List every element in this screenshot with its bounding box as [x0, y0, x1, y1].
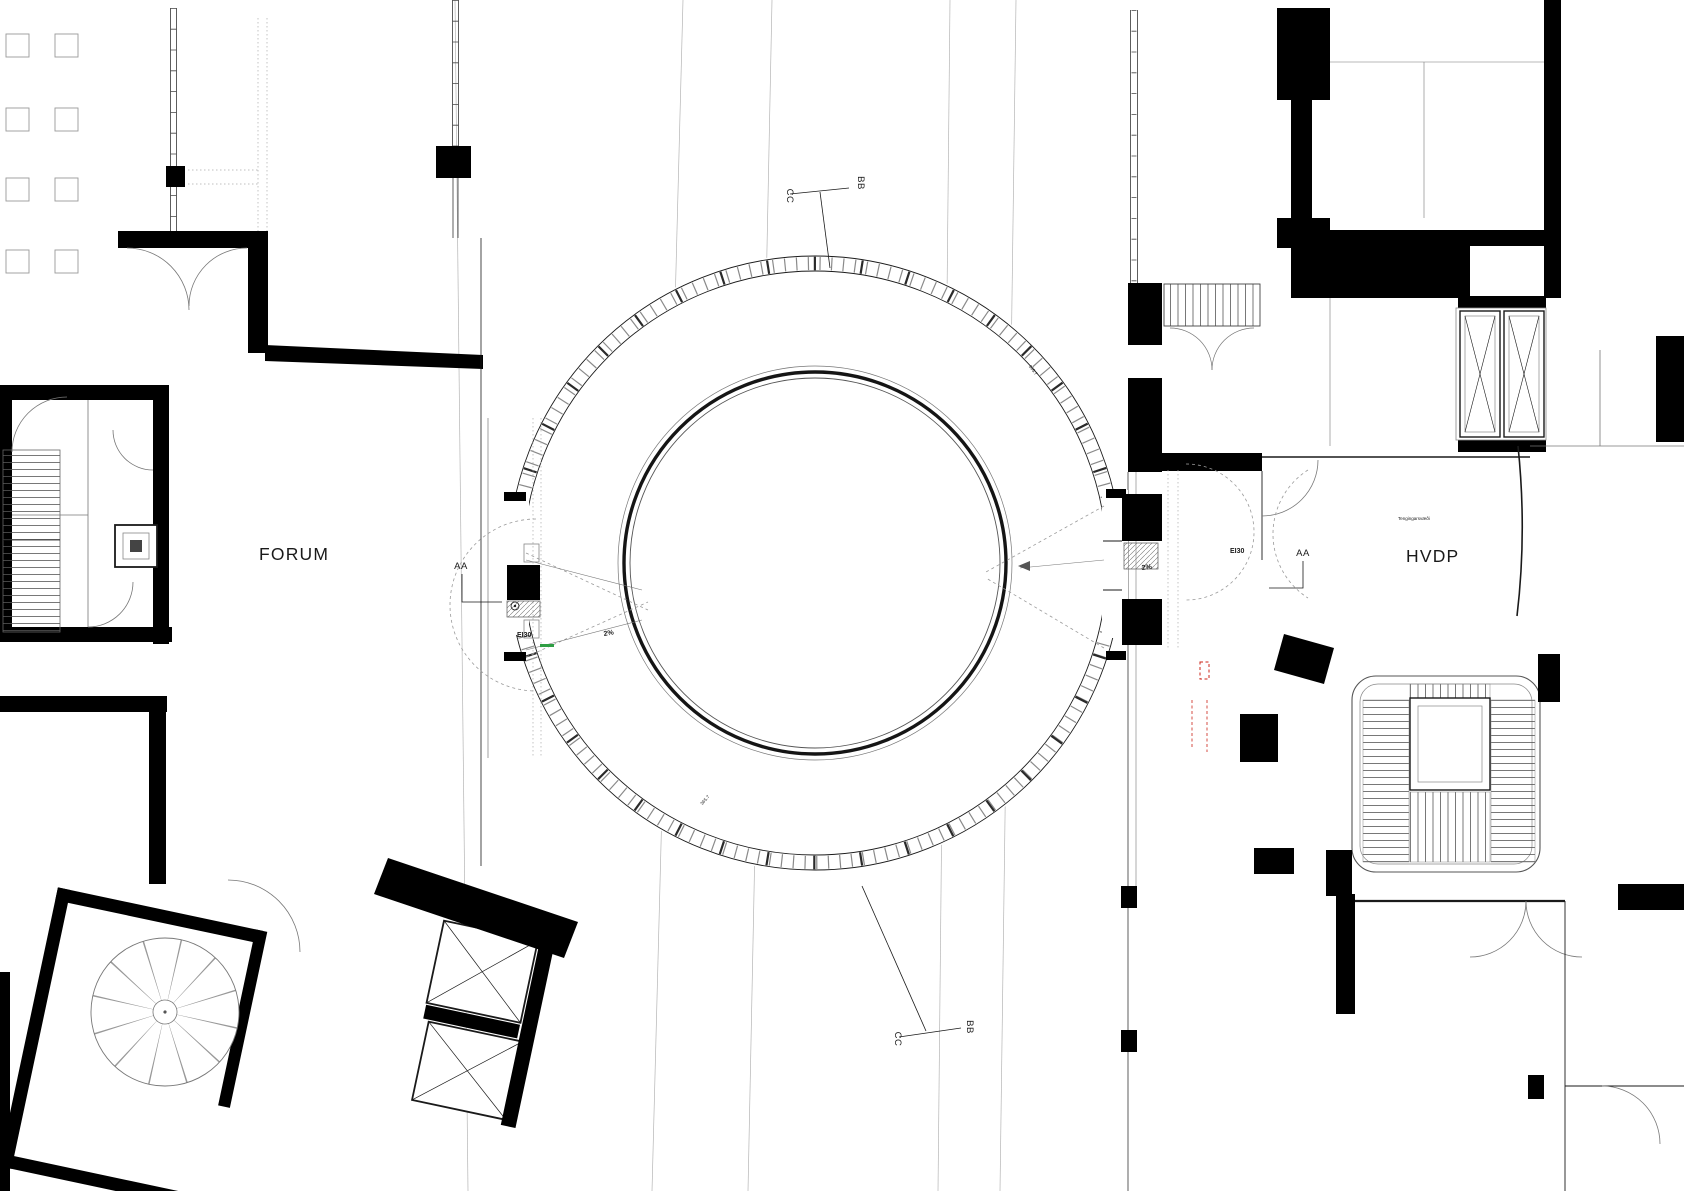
- upper-rooms: [118, 231, 483, 369]
- fire-rating-left-label: EI30: [517, 632, 532, 639]
- mid-left-rooms: [0, 385, 172, 644]
- section-aa-right-label: AA: [1296, 548, 1310, 559]
- ring-walkway: [503, 254, 1128, 872]
- curtain-wall-b: [436, 0, 471, 238]
- column-grid: [6, 34, 78, 273]
- fire-rating-right-label: EI30: [1230, 548, 1245, 555]
- bridge-core-wall: [507, 565, 540, 600]
- section-marker-bottom: CC BB: [862, 886, 975, 1046]
- green-marker: [540, 644, 554, 647]
- grid-reference-dashes: [188, 18, 267, 237]
- curtain-wall-a: [166, 8, 185, 237]
- door-swing-dashed: [1186, 464, 1254, 600]
- door-swing: [1526, 901, 1582, 957]
- forum-room-label: FORUM: [259, 544, 329, 564]
- door-swing: [1470, 901, 1526, 957]
- lower-left-block: [0, 696, 578, 1191]
- section-marker-aa-right: AA: [1269, 548, 1310, 588]
- lower-right-rooms: [1336, 884, 1684, 1191]
- left-building: FORUM: [0, 0, 578, 1191]
- square-stairwell: [1352, 676, 1540, 872]
- curtain-wall-right: [1131, 10, 1138, 283]
- section-bb-bottom-label: BB: [964, 1020, 975, 1034]
- stair-flight: [3, 450, 60, 632]
- right-building: Tengingarsvæði HVDP: [1121, 0, 1684, 1191]
- bridge-core-wall: [1122, 494, 1162, 541]
- floor-plan-drawing: FORUM: [0, 0, 1684, 1191]
- door-swing: [1262, 460, 1318, 516]
- floor-plan-canvas: FORUM: [0, 0, 1684, 1191]
- slope-right-label: 2%: [1141, 564, 1153, 572]
- curved-wall: [1517, 446, 1522, 616]
- section-bb-top-label: BB: [855, 176, 866, 190]
- stair-flight: [1164, 284, 1260, 326]
- door-swing: [1602, 1086, 1660, 1144]
- section-aa-left-label: AA: [454, 561, 468, 572]
- forum-facade: [481, 238, 488, 866]
- red-revision-marks: [1192, 662, 1209, 752]
- section-cc-top-label: CC: [784, 189, 795, 204]
- bridge-core-wall: [1122, 599, 1162, 645]
- hvdp-room-label: HVDP: [1406, 546, 1459, 566]
- elevator-shafts-right: [1456, 296, 1546, 452]
- zone-note-label: Tengingarsvæði: [1398, 515, 1430, 521]
- section-cc-bottom-label: CC: [892, 1032, 903, 1047]
- structural-column: [115, 525, 157, 567]
